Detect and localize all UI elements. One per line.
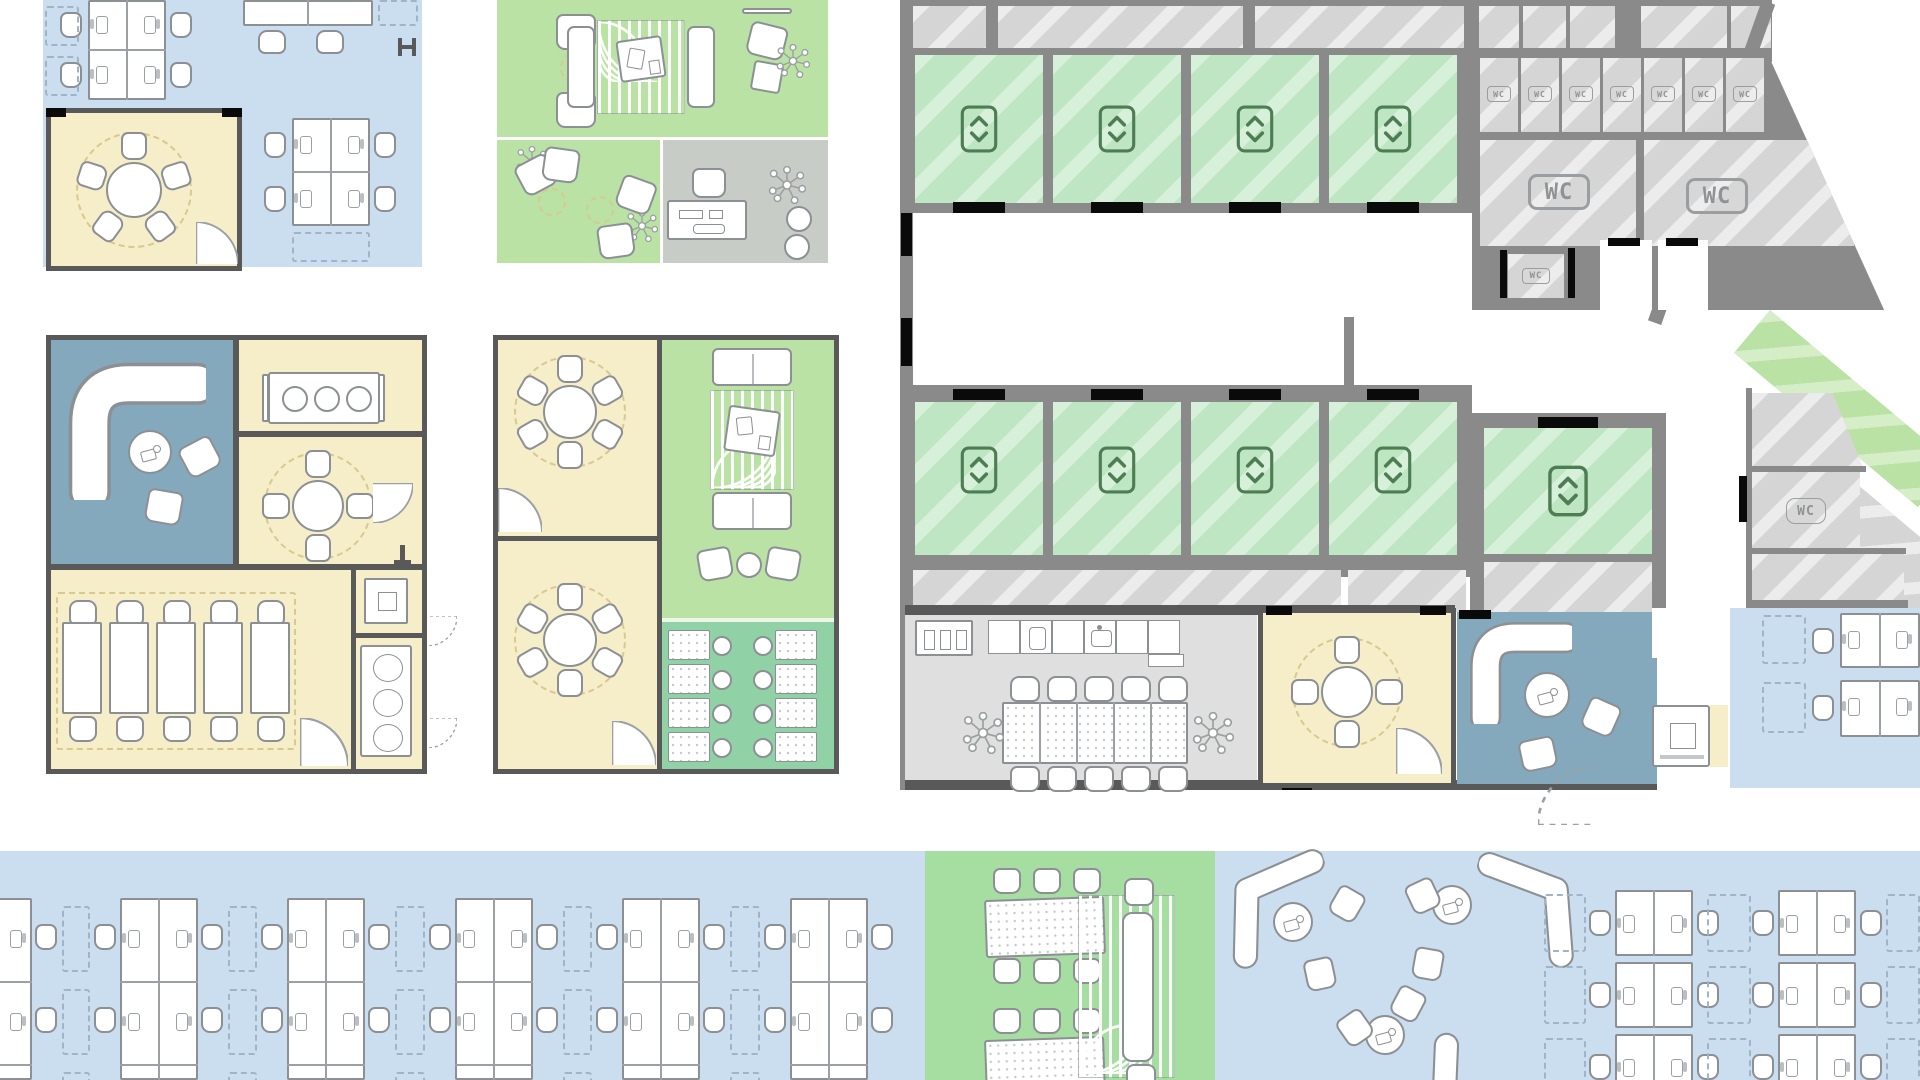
keyboard-icon: [188, 1016, 192, 1026]
desk-outline-dashed: [228, 906, 257, 972]
keyboard-icon: [1683, 918, 1687, 928]
stool: [712, 670, 732, 690]
chair-icon: [1752, 1054, 1774, 1080]
keyboard-icon: [1617, 1062, 1621, 1072]
desk-outline-dashed: [1886, 894, 1920, 952]
keyboard-icon: [1908, 701, 1912, 711]
door-mark: [901, 208, 912, 256]
table-divider: [1076, 702, 1078, 764]
chair-icon: [258, 30, 286, 54]
monitor-icon: [1623, 1059, 1635, 1077]
elevator-up-down-icon: [1098, 105, 1136, 153]
elevator-door-mark: [953, 202, 1005, 213]
chair-icon: [116, 716, 144, 742]
wall: [51, 564, 422, 570]
keyboard-icon: [22, 933, 26, 943]
chair-icon: [1860, 910, 1882, 936]
keyboard-icon: [1683, 990, 1687, 1000]
chair-icon: [262, 493, 290, 519]
chair-icon: [429, 924, 451, 950]
coffee-table: [1273, 902, 1313, 942]
round-table: [292, 480, 344, 532]
keyboard-icon: [289, 1016, 293, 1026]
desk-divider: [622, 1064, 700, 1066]
keyboard-icon: [858, 1016, 862, 1026]
monitor-icon: [678, 1013, 690, 1031]
table-divider: [1113, 702, 1115, 764]
chair-icon: [703, 1007, 725, 1033]
monitor-icon: [348, 190, 360, 208]
desk-outline-dashed: [1544, 894, 1586, 952]
stool: [786, 206, 812, 232]
stool: [753, 738, 773, 758]
desk-divider: [120, 981, 198, 983]
door-swing-icon: [612, 721, 656, 765]
kitchen-long-table: [1002, 702, 1188, 764]
wc-room[interactable]: [1644, 140, 1854, 246]
keyboard-icon: [624, 1016, 628, 1026]
monitor-icon: [798, 930, 810, 948]
keyboard-icon: [122, 1016, 126, 1026]
desk-divider: [622, 981, 700, 983]
gray-room: [1752, 554, 1904, 602]
wall: [233, 431, 422, 437]
chair-icon: [1073, 868, 1101, 894]
desk-outline-dashed: [292, 232, 370, 262]
coffee-table: [128, 430, 172, 474]
chair-icon: [1047, 676, 1077, 702]
desk-divider: [790, 1064, 868, 1066]
monitor-icon: [463, 1013, 475, 1031]
keyboard-icon: [523, 933, 527, 943]
round-table: [543, 385, 597, 439]
booth-table: [668, 732, 710, 762]
monitor-icon: [1671, 987, 1683, 1005]
monitor-icon: [144, 66, 156, 84]
chair-icon: [346, 493, 374, 519]
sofa-icon: [687, 26, 715, 108]
booth-table: [775, 664, 817, 694]
chair-icon: [1752, 982, 1774, 1008]
desk-outline-dashed: [62, 906, 90, 972]
plant-icon: [768, 166, 806, 204]
chair-icon: [1033, 958, 1061, 984]
monitor-icon: [348, 136, 360, 154]
chair-icon: [121, 132, 147, 160]
door-swing-icon: [427, 616, 457, 646]
armchair-icon: [143, 487, 184, 527]
booth-table: [668, 630, 710, 660]
keyboard-icon: [1780, 1062, 1784, 1072]
chair-icon: [305, 450, 331, 478]
door-mark: [46, 108, 66, 117]
wc-stall-label: WC: [1610, 86, 1634, 102]
desk-divider: [455, 981, 533, 983]
desk-outline-dashed: [62, 989, 90, 1055]
sideboard-side: [378, 374, 385, 422]
monitor-icon: [295, 930, 307, 948]
utility-room[interactable]: [1600, 240, 1652, 310]
door-mark: [222, 108, 242, 117]
chair-icon: [557, 669, 583, 697]
desk-divider: [1816, 890, 1818, 956]
chair-icon: [536, 924, 558, 950]
monitor-icon: [511, 930, 523, 948]
round-table: [106, 162, 162, 218]
monitor-icon: [1834, 987, 1846, 1005]
chair-icon: [871, 1007, 893, 1033]
column-shaft: [1652, 608, 1728, 658]
chair-icon: [596, 1007, 618, 1033]
keyboard-icon: [90, 19, 94, 29]
door-mark: [1500, 250, 1507, 298]
keyboard-icon: [1846, 918, 1850, 928]
chair-icon: [1334, 720, 1360, 748]
monitor-icon: [295, 1013, 307, 1031]
desk-divider: [1653, 962, 1655, 1028]
desk-divider: [790, 981, 868, 983]
wall: [657, 340, 662, 769]
chair-icon: [257, 716, 285, 742]
monitor-icon: [10, 1013, 22, 1031]
service-strip: [1484, 562, 1652, 612]
chair-icon: [764, 924, 786, 950]
desk-divider: [0, 981, 32, 983]
monitor-icon: [1896, 631, 1908, 649]
elevator-door-mark: [1367, 202, 1419, 213]
kitchen-counter: [1116, 620, 1148, 654]
chair-icon: [1860, 982, 1882, 1008]
chair-icon: [557, 355, 583, 383]
door-swing-icon: [300, 718, 348, 766]
monitor-icon: [1623, 915, 1635, 933]
desk-divider: [1653, 890, 1655, 956]
round-table: [1321, 666, 1373, 718]
desk-divider: [287, 981, 365, 983]
desk-divider: [1816, 962, 1818, 1028]
desk-divider: [287, 1064, 365, 1066]
desk-divider: [828, 898, 830, 1080]
coffee-table: [723, 405, 781, 458]
wall: [1344, 317, 1354, 387]
monitor-icon: [511, 1013, 523, 1031]
desk-outline-dashed: [1707, 1038, 1751, 1080]
desk-outline-dashed: [228, 1072, 257, 1080]
wc-block[interactable]: WCWCWCWCWCWCWCWCWCWC: [1472, 48, 1920, 310]
chair-icon: [35, 1007, 57, 1033]
monitor-icon: [300, 136, 312, 154]
stool: [712, 636, 732, 656]
wc-stall-label: WC: [1733, 86, 1757, 102]
door-mark: [1266, 606, 1292, 615]
chair-icon: [1033, 1008, 1061, 1034]
monitor-icon: [630, 930, 642, 948]
keyboard-icon: [1780, 918, 1784, 928]
sideboard-side: [262, 374, 269, 422]
stool: [753, 636, 773, 656]
elevator-door-mark: [1229, 202, 1281, 213]
stool: [784, 234, 810, 260]
monitor-icon: [1834, 1059, 1846, 1077]
window-cell: [1479, 6, 1519, 48]
desk-outline-dashed: [563, 989, 592, 1055]
desk-outline-dashed: [45, 6, 79, 46]
keyboard-icon: [360, 193, 364, 203]
door-swing-icon: [1538, 767, 1596, 825]
kitchen-counter: [988, 620, 1020, 654]
monitor-icon: [1896, 698, 1908, 716]
chair-icon: [596, 924, 618, 950]
desk-outline-dashed: [730, 1072, 760, 1080]
kitchen-counter: [1148, 654, 1184, 667]
desk-divider: [660, 898, 662, 1080]
monitor-icon: [1786, 915, 1798, 933]
monitor-icon: [10, 930, 22, 948]
elevator-up-down-icon: [960, 105, 998, 153]
keyboard-icon: [1842, 634, 1846, 644]
desk-outline-dashed: [395, 1072, 425, 1080]
monitor-icon: [1671, 1059, 1683, 1077]
window-cell: [998, 6, 1243, 48]
desk-divider: [0, 1064, 32, 1066]
desk-icon: [667, 200, 747, 240]
elevator-up-down-icon: [1374, 446, 1412, 494]
monitor-icon: [300, 190, 312, 208]
chair-icon: [871, 924, 893, 950]
door-mark: [1666, 238, 1698, 246]
utility-room[interactable]: [1658, 240, 1708, 310]
desk-outline-dashed: [1707, 966, 1751, 1024]
desk-divider: [158, 898, 160, 1080]
wall: [351, 570, 356, 769]
keyboard-icon: [294, 139, 298, 149]
monitor-icon: [1786, 1059, 1798, 1077]
keyboard-icon: [188, 933, 192, 943]
chair-icon: [993, 958, 1021, 984]
side-table-outline: [586, 196, 614, 224]
chair-icon: [261, 1007, 283, 1033]
kitchen-counter: [1084, 620, 1116, 654]
elevator-door-mark: [1229, 389, 1281, 400]
chair-icon: [368, 924, 390, 950]
monitor-icon: [176, 1013, 188, 1031]
wall: [498, 536, 658, 541]
keyboard-icon: [1846, 1062, 1850, 1072]
window-cell: [1523, 6, 1566, 48]
armchair-icon: [763, 545, 802, 582]
keyboard-icon: [457, 933, 461, 943]
chair-icon: [316, 30, 344, 54]
chair-icon: [703, 924, 725, 950]
desk-outline-dashed: [1544, 1038, 1586, 1080]
table-divider: [1039, 702, 1041, 764]
kitchen-counter: [1020, 620, 1052, 654]
door-mark: [1739, 476, 1747, 522]
plant-icon: [962, 712, 1004, 754]
chair-icon: [1084, 676, 1114, 702]
wall: [233, 340, 239, 564]
keyboard-icon: [792, 933, 796, 943]
desk-outline-dashed: [62, 1072, 90, 1080]
keyboard-icon: [156, 19, 160, 29]
elevator-door-mark: [953, 389, 1005, 400]
stool: [712, 738, 732, 758]
chair-icon: [1812, 695, 1834, 721]
copier-cabinet: [1652, 705, 1710, 767]
monitor-icon: [1786, 987, 1798, 1005]
desk-outline-dashed: [1762, 615, 1806, 664]
stool: [753, 670, 773, 690]
round-table: [543, 613, 597, 667]
coffee-table: [615, 35, 666, 83]
chair-icon: [1860, 1054, 1882, 1080]
kitchenette-appliance: [364, 578, 408, 624]
chair-icon: [261, 924, 283, 950]
keyboard-icon: [22, 1016, 26, 1026]
keyboard-icon: [1780, 990, 1784, 1000]
bench-sofa: [1122, 912, 1154, 1062]
chair-icon: [557, 441, 583, 469]
booth-table: [775, 698, 817, 728]
keyboard-icon: [289, 933, 293, 943]
chair-icon: [1121, 676, 1151, 702]
monitor-icon: [1671, 915, 1683, 933]
sideboard: [915, 620, 973, 656]
armchair-icon: [695, 545, 734, 582]
desk-divider: [88, 49, 166, 51]
chair-icon: [94, 924, 116, 950]
booth-table: [775, 630, 817, 660]
chair-icon: [1589, 910, 1611, 936]
chair-icon: [1033, 868, 1061, 894]
ottoman: [1126, 1064, 1156, 1080]
keyboard-icon: [1683, 1062, 1687, 1072]
desk-outline-dashed: [1762, 682, 1806, 733]
monitor-icon: [798, 1013, 810, 1031]
elevator-up-down-icon: [960, 446, 998, 494]
chair-icon: [170, 12, 192, 38]
chair-icon: [1158, 766, 1188, 792]
side-table-outline: [538, 188, 566, 216]
window-cell: [1570, 6, 1615, 48]
chair-icon: [536, 1007, 558, 1033]
floor-plan-canvas: WCWCWCWCWCWCWCWCWCWC WC: [0, 0, 1920, 1080]
keyboard-icon: [122, 933, 126, 943]
room-gap: [662, 618, 834, 622]
chair-icon: [368, 1007, 390, 1033]
monitor-icon: [343, 1013, 355, 1031]
chair-icon: [1334, 636, 1360, 664]
desk-outline-dashed: [730, 989, 760, 1055]
chair-icon: [35, 924, 57, 950]
chair-icon: [374, 132, 396, 158]
desk-outline-dashed: [45, 56, 79, 96]
chair-icon: [764, 1007, 786, 1033]
desk-outline-dashed: [563, 1072, 592, 1080]
desk-outline-dashed: [395, 906, 425, 972]
monitor-icon: [846, 930, 858, 948]
monitor-icon: [144, 16, 156, 34]
chair-icon: [1121, 766, 1151, 792]
keyboard-icon: [1617, 918, 1621, 928]
window-cell: [913, 6, 986, 48]
classroom-table: [250, 622, 290, 714]
chair-icon: [201, 924, 223, 950]
classroom-table: [156, 622, 196, 714]
plant-icon: [776, 44, 810, 78]
monitor-icon: [176, 930, 188, 948]
desk-outline-dashed: [730, 906, 760, 972]
loveseat: [712, 492, 792, 530]
keyboard-icon: [1842, 701, 1846, 711]
elevator-door-mark: [1538, 417, 1598, 428]
chair-icon: [1589, 1054, 1611, 1080]
desk-outline-dashed: [1886, 966, 1920, 1024]
keyboard-icon: [1846, 990, 1850, 1000]
desk-divider: [1879, 680, 1881, 737]
wc-stall-label: WC: [1528, 86, 1552, 102]
monitor-icon: [1848, 631, 1860, 649]
monitor-icon: [96, 66, 108, 84]
chair-icon: [94, 1007, 116, 1033]
chair-icon: [557, 583, 583, 611]
chair-icon: [429, 1007, 451, 1033]
desk-cluster: [0, 898, 32, 1080]
door-swing-icon: [196, 222, 238, 264]
stool: [753, 704, 773, 724]
armchair-icon: [541, 146, 581, 185]
keyboard-icon: [360, 139, 364, 149]
chair-icon: [374, 186, 396, 212]
door-swing-icon: [1396, 728, 1442, 774]
door-mark: [1420, 606, 1446, 615]
chair-icon: [1047, 766, 1077, 792]
elevator-door-mark: [1367, 389, 1419, 400]
chair-icon: [201, 1007, 223, 1033]
sideboard: [268, 372, 380, 424]
plant-icon: [1192, 712, 1234, 754]
chair-icon: [170, 62, 192, 88]
chair-icon: [1291, 679, 1319, 705]
chair-icon: [1589, 982, 1611, 1008]
keyboard-icon: [792, 1016, 796, 1026]
desk-divider: [455, 1064, 533, 1066]
classroom-table: [62, 622, 102, 714]
chair-icon: [210, 716, 238, 742]
keyboard-icon: [90, 69, 94, 79]
monitor-icon: [1623, 987, 1635, 1005]
monitor-icon: [463, 930, 475, 948]
desk-outline-dashed: [378, 0, 418, 26]
table-divider: [1150, 702, 1152, 764]
keyboard-icon: [523, 1016, 527, 1026]
booth-table: [668, 698, 710, 728]
kitchen-counter: [1148, 620, 1180, 654]
booth-table: [775, 732, 817, 762]
wc-stall-label: WC: [1487, 86, 1511, 102]
classroom-table: [109, 622, 149, 714]
door-swing-icon: [427, 718, 457, 748]
keyboard-icon: [294, 193, 298, 203]
desk-outline-dashed: [1544, 966, 1586, 1024]
elevator-up-down-icon: [1098, 446, 1136, 494]
office-chair-icon: [692, 168, 726, 198]
side-table: [736, 552, 762, 578]
monitor-icon: [96, 16, 108, 34]
chair-icon: [163, 716, 191, 742]
desk-outline-dashed: [563, 906, 592, 972]
door-mark: [1459, 610, 1491, 619]
